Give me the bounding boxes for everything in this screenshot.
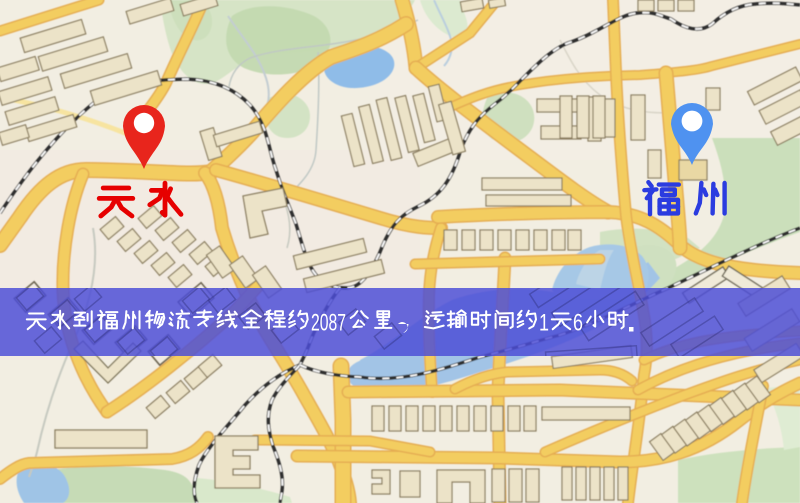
svg-text:1: 1: [539, 310, 549, 337]
svg-text:6: 6: [573, 310, 583, 337]
svg-text:2087: 2087: [311, 310, 346, 337]
